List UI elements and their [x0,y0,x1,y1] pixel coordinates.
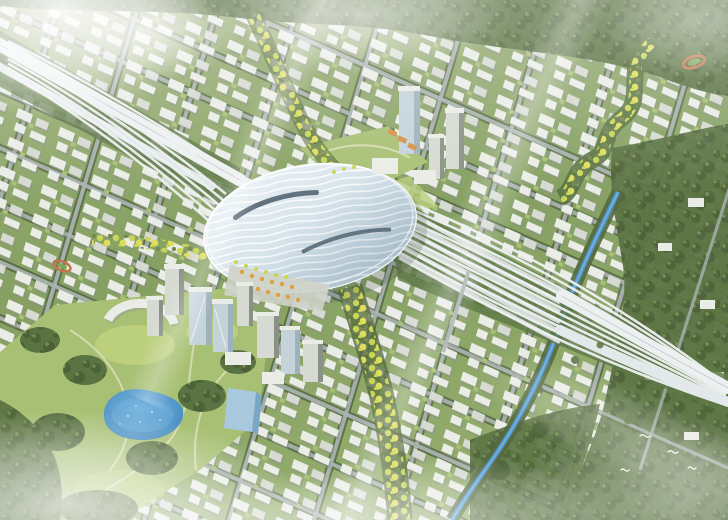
aerial-rendering-canvas [0,0,728,520]
masterplan-scene [0,0,728,520]
blue-roof-building [224,388,262,434]
